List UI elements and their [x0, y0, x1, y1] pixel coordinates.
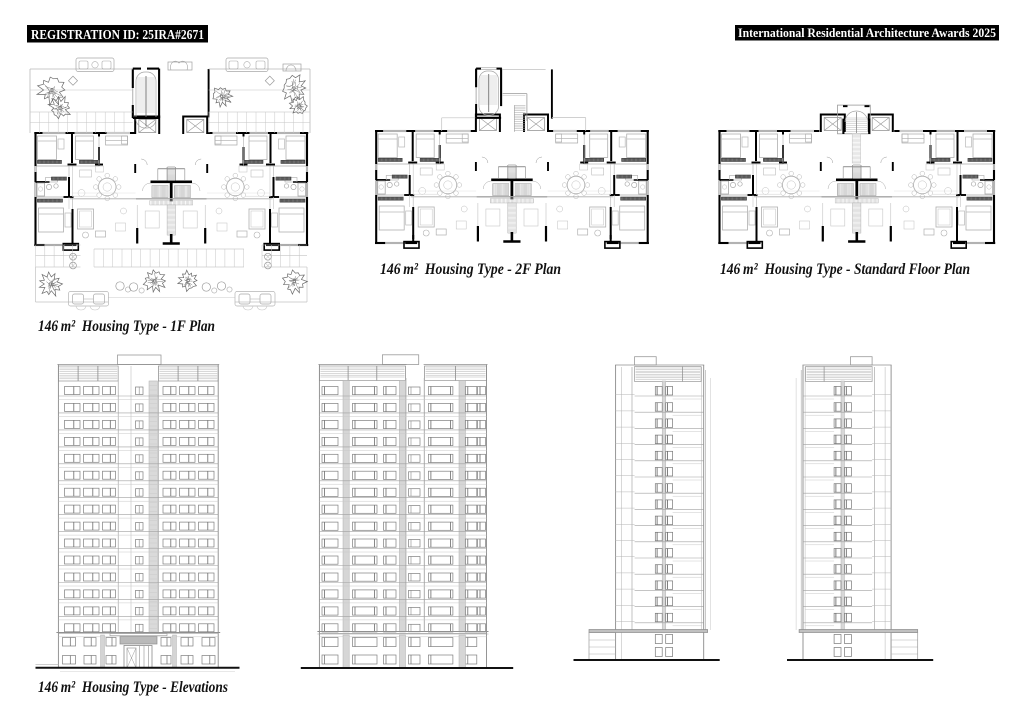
- svg-text:146 m² Housing Type - Standar: 146 m² Housing Type - Standard Floor Pla…: [720, 261, 970, 278]
- svg-text:REGISTRATION ID: 25IRA#2671: REGISTRATION ID: 25IRA#2671: [31, 28, 204, 43]
- svg-text:International Residential Arch: International Residential Architecture A…: [738, 26, 996, 40]
- svg-text:146 m² Housing Type - 2F Plan: 146 m² Housing Type - 2F Plan: [380, 261, 561, 278]
- svg-text:146 m² Housing Type - 1F Plan: 146 m² Housing Type - 1F Plan: [38, 318, 215, 335]
- svg-text:146 m² Housing Type - Elevati: 146 m² Housing Type - Elevations: [38, 679, 228, 696]
